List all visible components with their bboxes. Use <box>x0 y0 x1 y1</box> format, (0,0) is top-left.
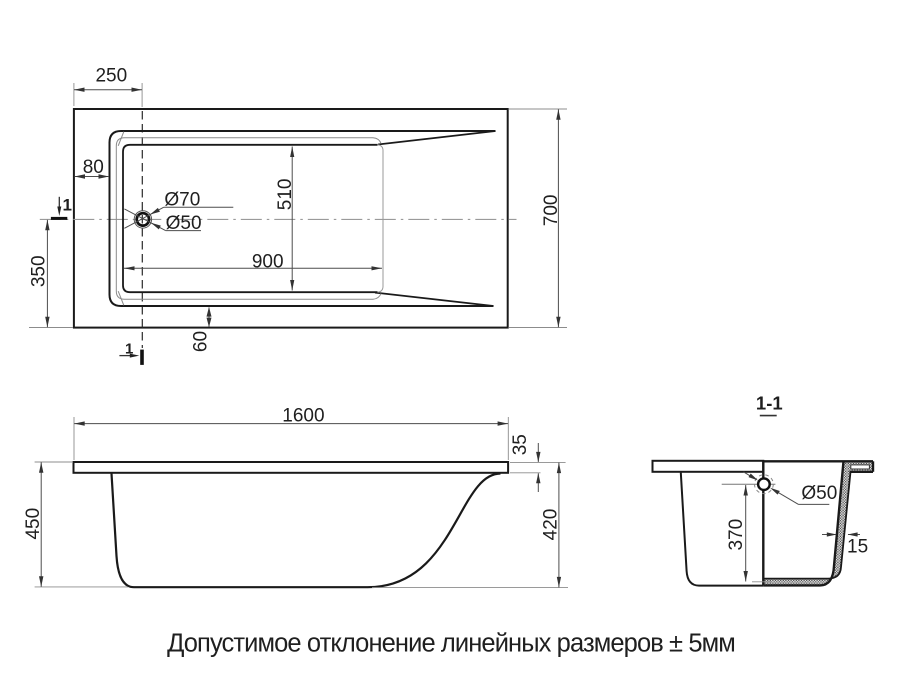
svg-text:900: 900 <box>252 251 284 272</box>
svg-text:Ø50: Ø50 <box>166 213 202 234</box>
svg-text:60: 60 <box>191 331 212 352</box>
svg-text:1-1: 1-1 <box>756 393 783 414</box>
svg-text:1: 1 <box>63 196 72 215</box>
svg-text:350: 350 <box>28 255 49 287</box>
svg-text:35: 35 <box>510 434 531 455</box>
svg-text:Допустимое отклонение линейных: Допустимое отклонение линейных размеров … <box>167 630 735 658</box>
svg-text:250: 250 <box>95 66 127 87</box>
svg-text:Ø50: Ø50 <box>801 483 837 504</box>
svg-text:Ø70: Ø70 <box>164 190 200 211</box>
svg-text:700: 700 <box>541 195 562 227</box>
svg-text:15: 15 <box>847 537 868 558</box>
svg-text:1: 1 <box>125 340 133 357</box>
svg-text:1600: 1600 <box>282 405 324 426</box>
svg-text:420: 420 <box>541 509 562 541</box>
svg-text:80: 80 <box>83 157 104 178</box>
svg-text:450: 450 <box>23 508 44 540</box>
svg-text:370: 370 <box>726 519 747 551</box>
svg-text:510: 510 <box>275 179 296 211</box>
